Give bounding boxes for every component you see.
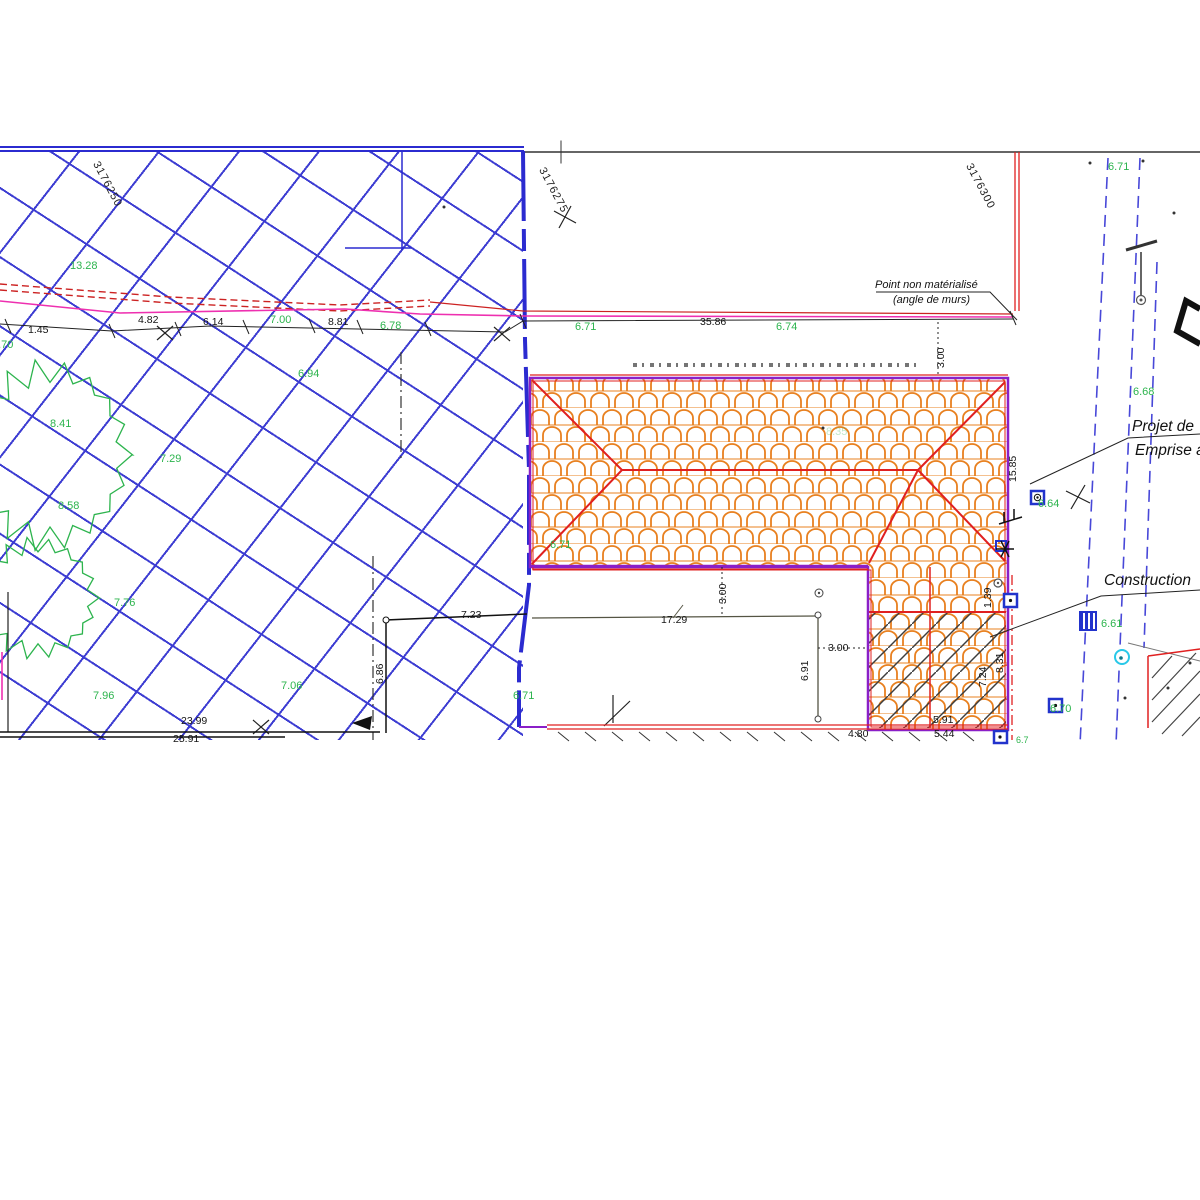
tree-outline (0, 360, 133, 550)
wall-hatch-ticks (558, 732, 974, 741)
neighbor-building-lines (345, 152, 412, 250)
axis-dashdot-lines (373, 352, 401, 740)
map-border-lines (0, 141, 1200, 163)
site-plan-canvas: 31762503176275317630013.286.708.417.298.… (0, 0, 1200, 1200)
edge-building-symbol (1177, 301, 1200, 344)
roof-main-tiles (530, 378, 1008, 566)
signpost-bar (1126, 241, 1157, 250)
dimension-node (815, 716, 821, 722)
site-plan-svg (0, 0, 1200, 1200)
neighbor-corner-building (1148, 649, 1200, 736)
north-arrowhead (352, 716, 372, 730)
parcel-boundary-blue (519, 151, 529, 727)
dimension-node (815, 612, 821, 618)
boundary-node (383, 617, 389, 623)
right-wall-red (1012, 152, 1019, 740)
roof-wing-hatch-overlay (869, 613, 1006, 728)
parcel-boundary-black (0, 614, 527, 737)
courtyard-dimension-lines (532, 605, 818, 719)
survey-point-icons (994, 241, 1200, 743)
gate-symbol (604, 695, 630, 726)
survey-point-dot (818, 592, 820, 594)
fence-lines (0, 284, 1013, 332)
clipped-owner-text (633, 363, 918, 367)
tree-outline (0, 538, 100, 659)
